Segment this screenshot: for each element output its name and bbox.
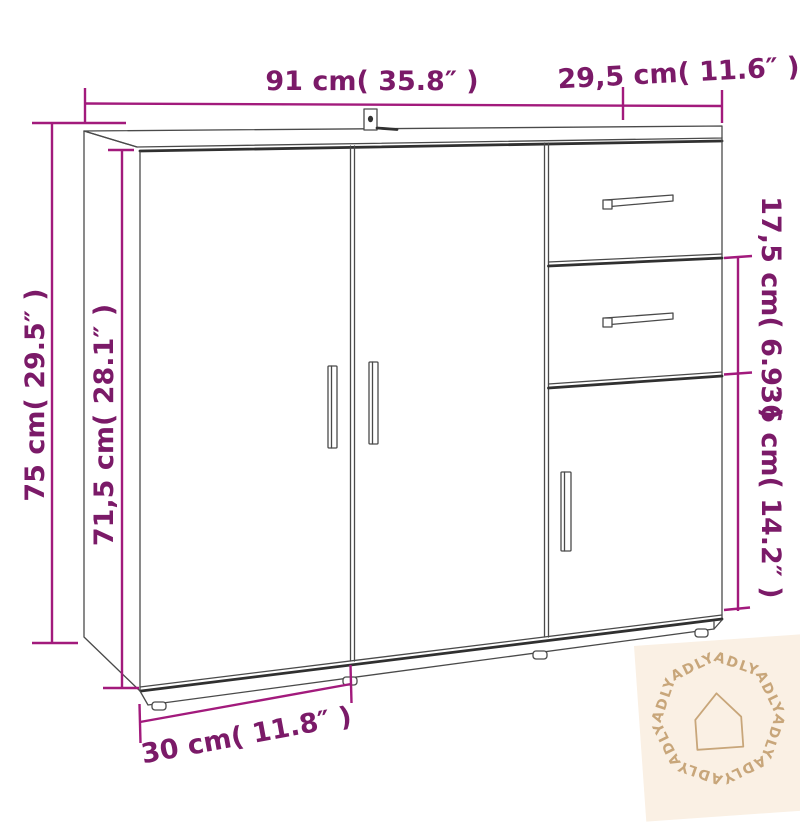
dim-label-total-height: 75 cm( 29.5″ ) [20,288,51,501]
dim-label-top-width: 91 cm( 35.8″ ) [265,66,478,97]
door-divider-left [351,146,355,661]
drawer-handle-bottom [603,313,673,327]
dim-line-right [724,256,752,611]
brand-watermark: ADLY ADLY ADLY ADLY ADLY ADLY ADLY ADLY [634,633,800,822]
drawer-divider-2 [549,372,723,388]
watermark-text: ADLY [752,669,787,719]
lower-right-door-handle [561,472,571,551]
watermark-text: ADLY [649,719,684,769]
drawer-handle-top [603,195,673,209]
drawer-divider-1 [549,254,723,266]
left-door-handle [328,366,337,448]
watermark-text: ADLY [649,675,680,725]
middle-door-handle [369,362,378,444]
foot [533,651,547,659]
furniture-dimension-diagram: 91 cm( 35.8″ ) 29,5 cm( 11.6″ ) 75 cm( 2… [0,0,800,800]
cabinet-top-panel [84,126,722,151]
house-icon [683,682,754,756]
wall-bracket [364,109,397,130]
door-divider-right-section [545,143,549,637]
dim-label-body-height: 71,5 cm( 28.1″ ) [89,304,120,546]
foot [695,629,708,637]
cabinet-line-art [84,109,722,710]
dim-label-top-depth: 29,5 cm( 11.6″ ) [557,52,800,96]
dim-label-lower-door-height: 36 cm( 14.2″ ) [755,385,786,598]
dim-label-bottom-depth: 30 cm( 11.8″ ) [139,701,354,770]
watermark-text: ADLY [718,752,768,787]
foot [152,702,166,710]
